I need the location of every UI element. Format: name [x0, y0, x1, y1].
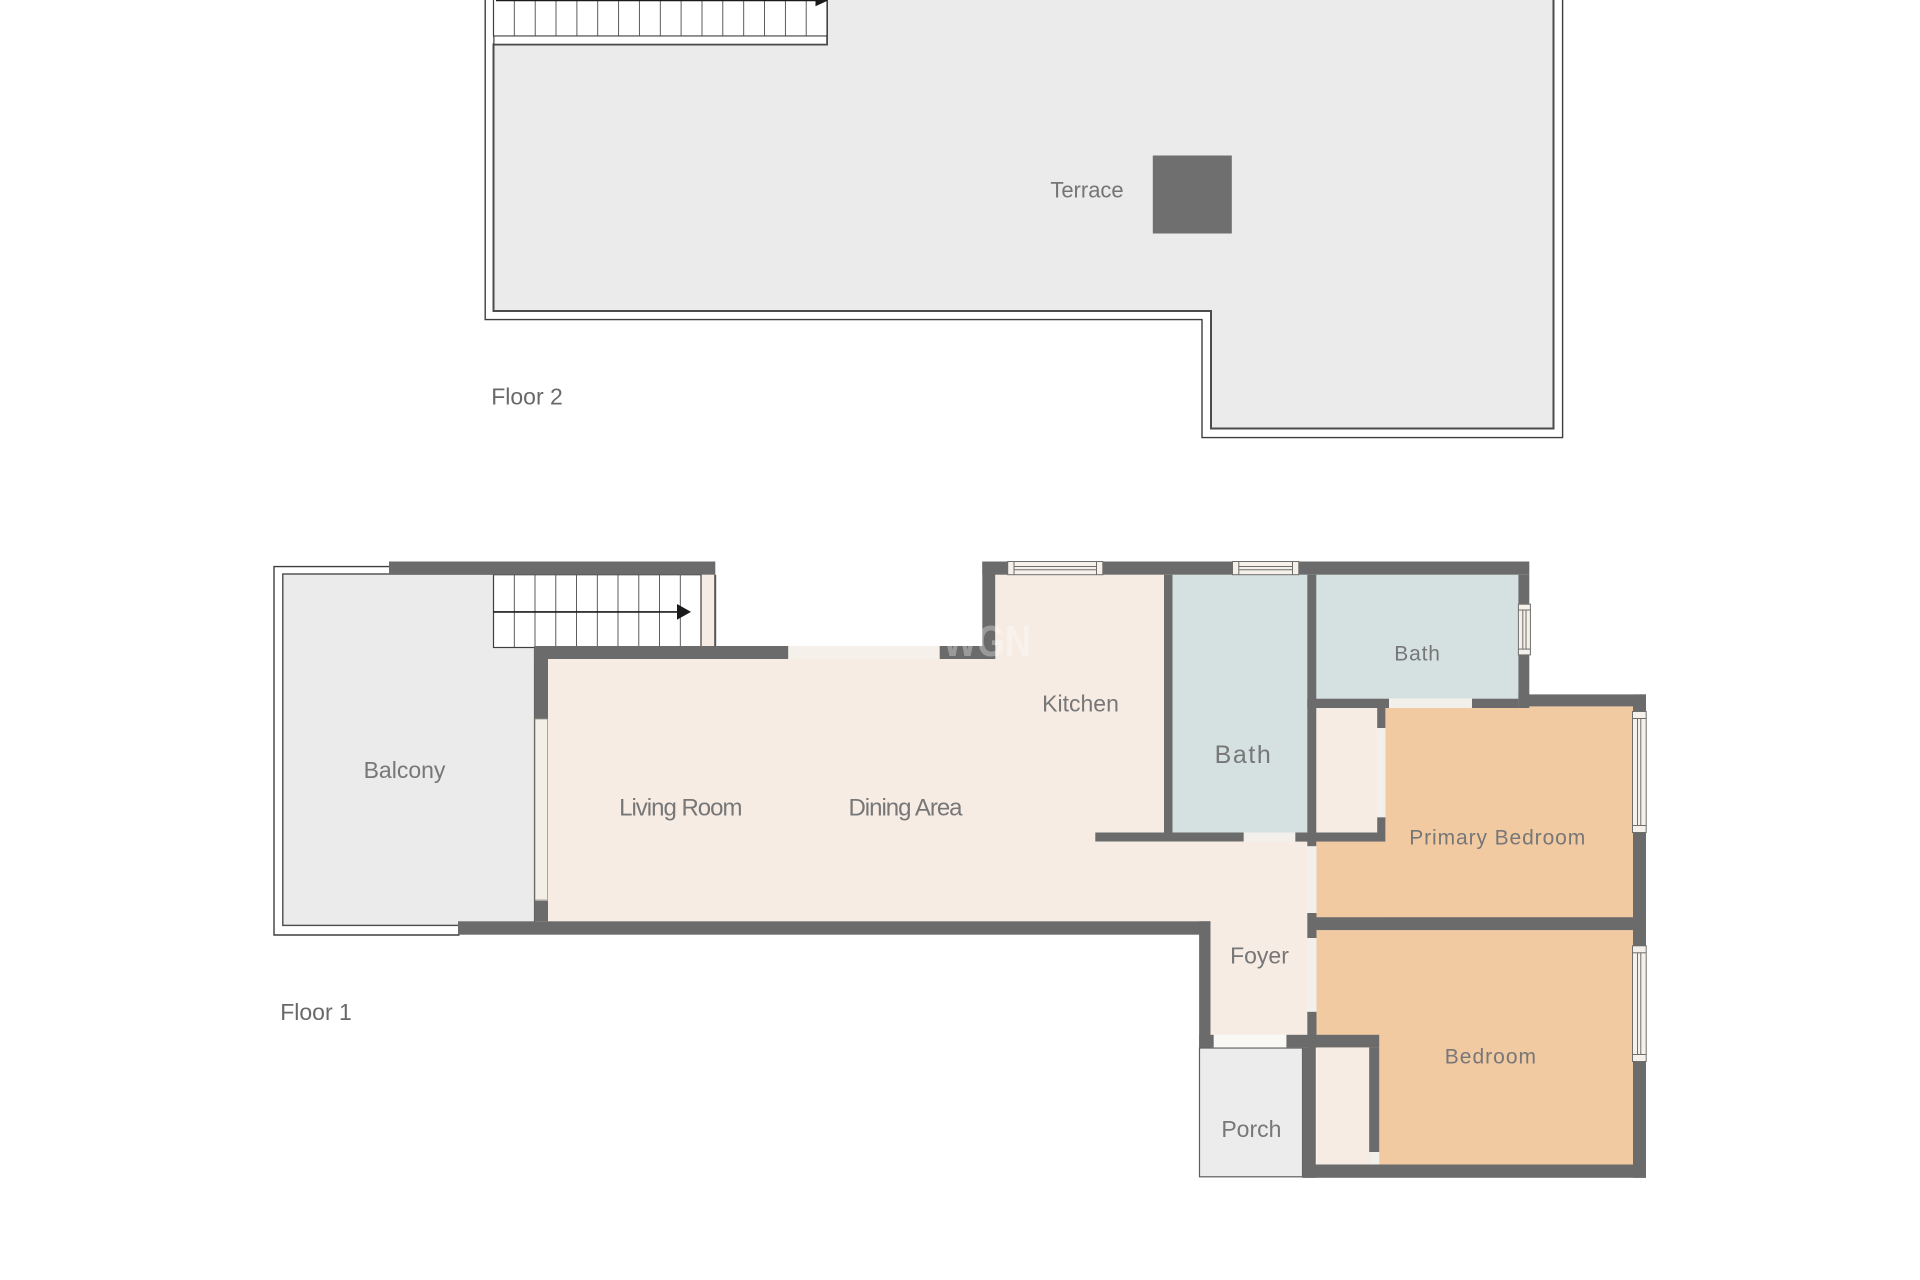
svg-text:Kitchen: Kitchen: [1042, 691, 1119, 717]
svg-text:Balcony: Balcony: [364, 757, 446, 783]
svg-text:Bedroom: Bedroom: [1445, 1045, 1537, 1068]
svg-text:Foyer: Foyer: [1230, 943, 1289, 969]
svg-text:WGN: WGN: [943, 617, 1031, 666]
svg-text:Living Room: Living Room: [619, 795, 741, 822]
svg-text:Floor 1: Floor 1: [280, 999, 352, 1025]
svg-text:Primary Bedroom: Primary Bedroom: [1409, 827, 1586, 850]
svg-text:Bath: Bath: [1215, 741, 1273, 769]
svg-text:Terrace: Terrace: [1050, 178, 1123, 203]
svg-text:Bath: Bath: [1394, 643, 1440, 666]
svg-text:Porch: Porch: [1221, 1116, 1281, 1142]
svg-text:Dining Area: Dining Area: [848, 795, 963, 822]
svg-text:Floor 2: Floor 2: [491, 384, 563, 410]
